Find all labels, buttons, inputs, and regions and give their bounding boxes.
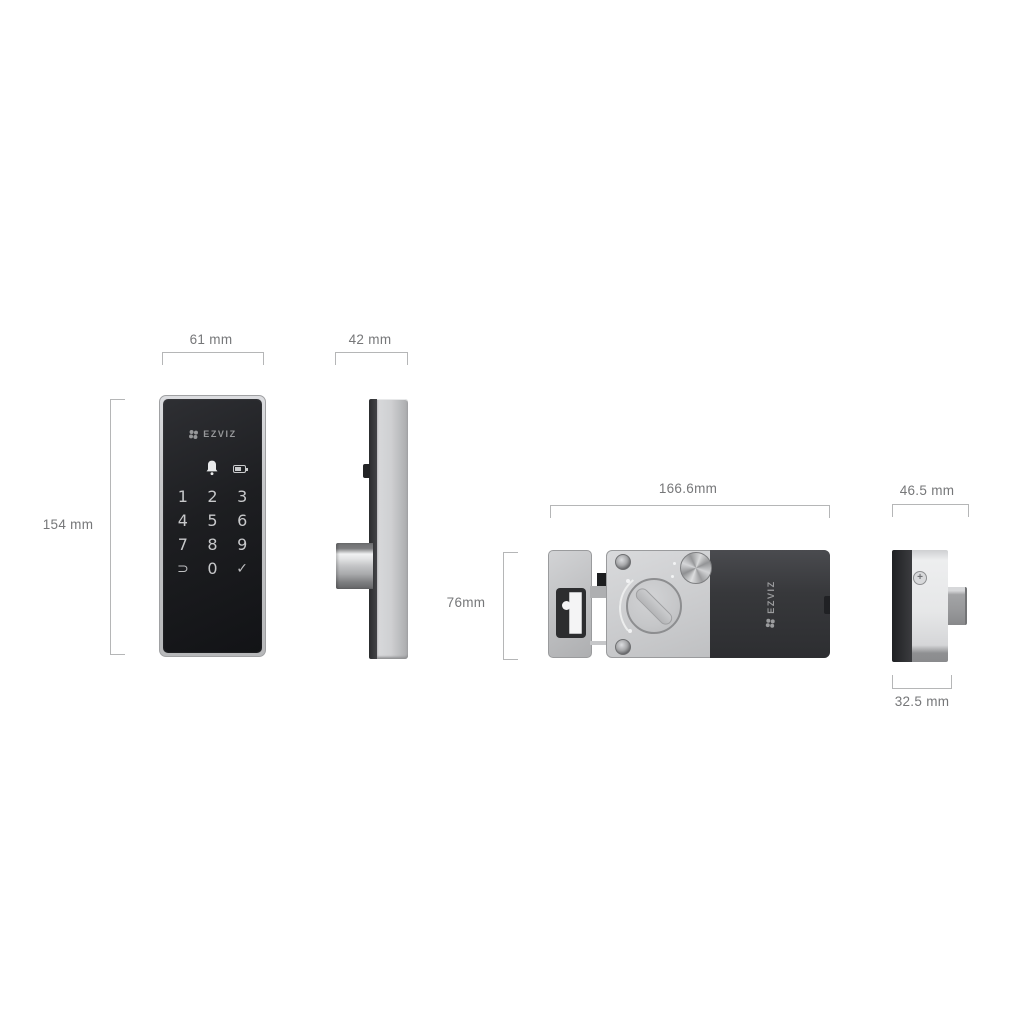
key-7: 7: [178, 537, 188, 553]
latch-connector-lower: [590, 641, 606, 645]
dim-bracket-lockside-width: [892, 504, 969, 517]
dim-bracket-lock-width: [550, 505, 830, 518]
key-1: 1: [178, 489, 188, 505]
ezviz-flower-icon: [764, 617, 775, 628]
lock-side-body: [892, 550, 948, 662]
dim-bracket-keypad-width: [162, 352, 264, 365]
dim-bracket-keypad-depth: [335, 352, 408, 365]
dim-label-lock-height: 76mm: [416, 595, 516, 610]
dim-label-keypad-width: 61 mm: [161, 332, 261, 347]
screw-icon: [615, 554, 631, 570]
ezviz-flower-icon: [188, 429, 199, 440]
knurled-knob: [680, 552, 712, 584]
product-dimension-diagram: 61 mm 154 mm EZVIZ 1 2 3 4 5 6 7 8 9 ⊃: [0, 0, 1024, 1024]
key-6: 6: [237, 513, 247, 529]
key-4: 4: [178, 513, 188, 529]
keypad-side-front-edge: [369, 399, 377, 659]
indicator-dot: [673, 562, 676, 565]
key-back: ⊃: [177, 562, 189, 576]
dim-label-lock-width: 166.6mm: [600, 481, 776, 496]
key-0: 0: [207, 561, 217, 577]
battery-cover-logo-wrap: EZVIZ: [720, 554, 820, 654]
key-3: 3: [237, 489, 247, 505]
dim-bracket-lockside-depth: [892, 675, 952, 689]
keypad-side-body: [377, 399, 408, 659]
dim-bracket-keypad-height: [110, 399, 125, 655]
doorbell-icon: [204, 459, 220, 477]
dim-label-lockside-depth: 32.5 mm: [872, 694, 972, 709]
doorbell-button-side: [363, 464, 370, 478]
indicator-dot: [626, 579, 630, 583]
key-8: 8: [207, 537, 217, 553]
battery-cover-notch: [824, 596, 830, 614]
key-5: 5: [207, 513, 217, 529]
lock-side-front-edge: [892, 550, 912, 662]
ezviz-logo-text: EZVIZ: [203, 429, 237, 439]
ezviz-logo-text: EZVIZ: [765, 580, 775, 614]
dim-bracket-lock-height: [503, 552, 518, 660]
battery-icon: [233, 465, 246, 473]
lock-side-housing: [912, 550, 948, 662]
screw-icon: +: [913, 571, 927, 585]
dim-label-keypad-height: 154 mm: [18, 517, 118, 532]
mounting-tab: [948, 587, 967, 625]
latch-bolt: [597, 573, 606, 586]
indicator-dot: [671, 575, 674, 578]
dim-label-lockside-width: 46.5 mm: [877, 483, 977, 498]
indicator-dot: [628, 629, 632, 633]
key-confirm: ✓: [236, 562, 248, 576]
ezviz-logo: EZVIZ: [163, 427, 262, 441]
latch-slot: [569, 592, 582, 634]
latch-hole: [562, 601, 571, 610]
latch-connector: [590, 586, 606, 598]
dim-label-keypad-depth: 42 mm: [320, 332, 420, 347]
key-9: 9: [237, 537, 247, 553]
screw-icon: [615, 639, 631, 655]
keypad-keys: 1 2 3 4 5 6 7 8 9 ⊃ 0 ✓: [168, 485, 257, 581]
ezviz-logo-rotated: EZVIZ: [764, 580, 775, 629]
key-2: 2: [207, 489, 217, 505]
lock-cylinder: [336, 543, 373, 589]
